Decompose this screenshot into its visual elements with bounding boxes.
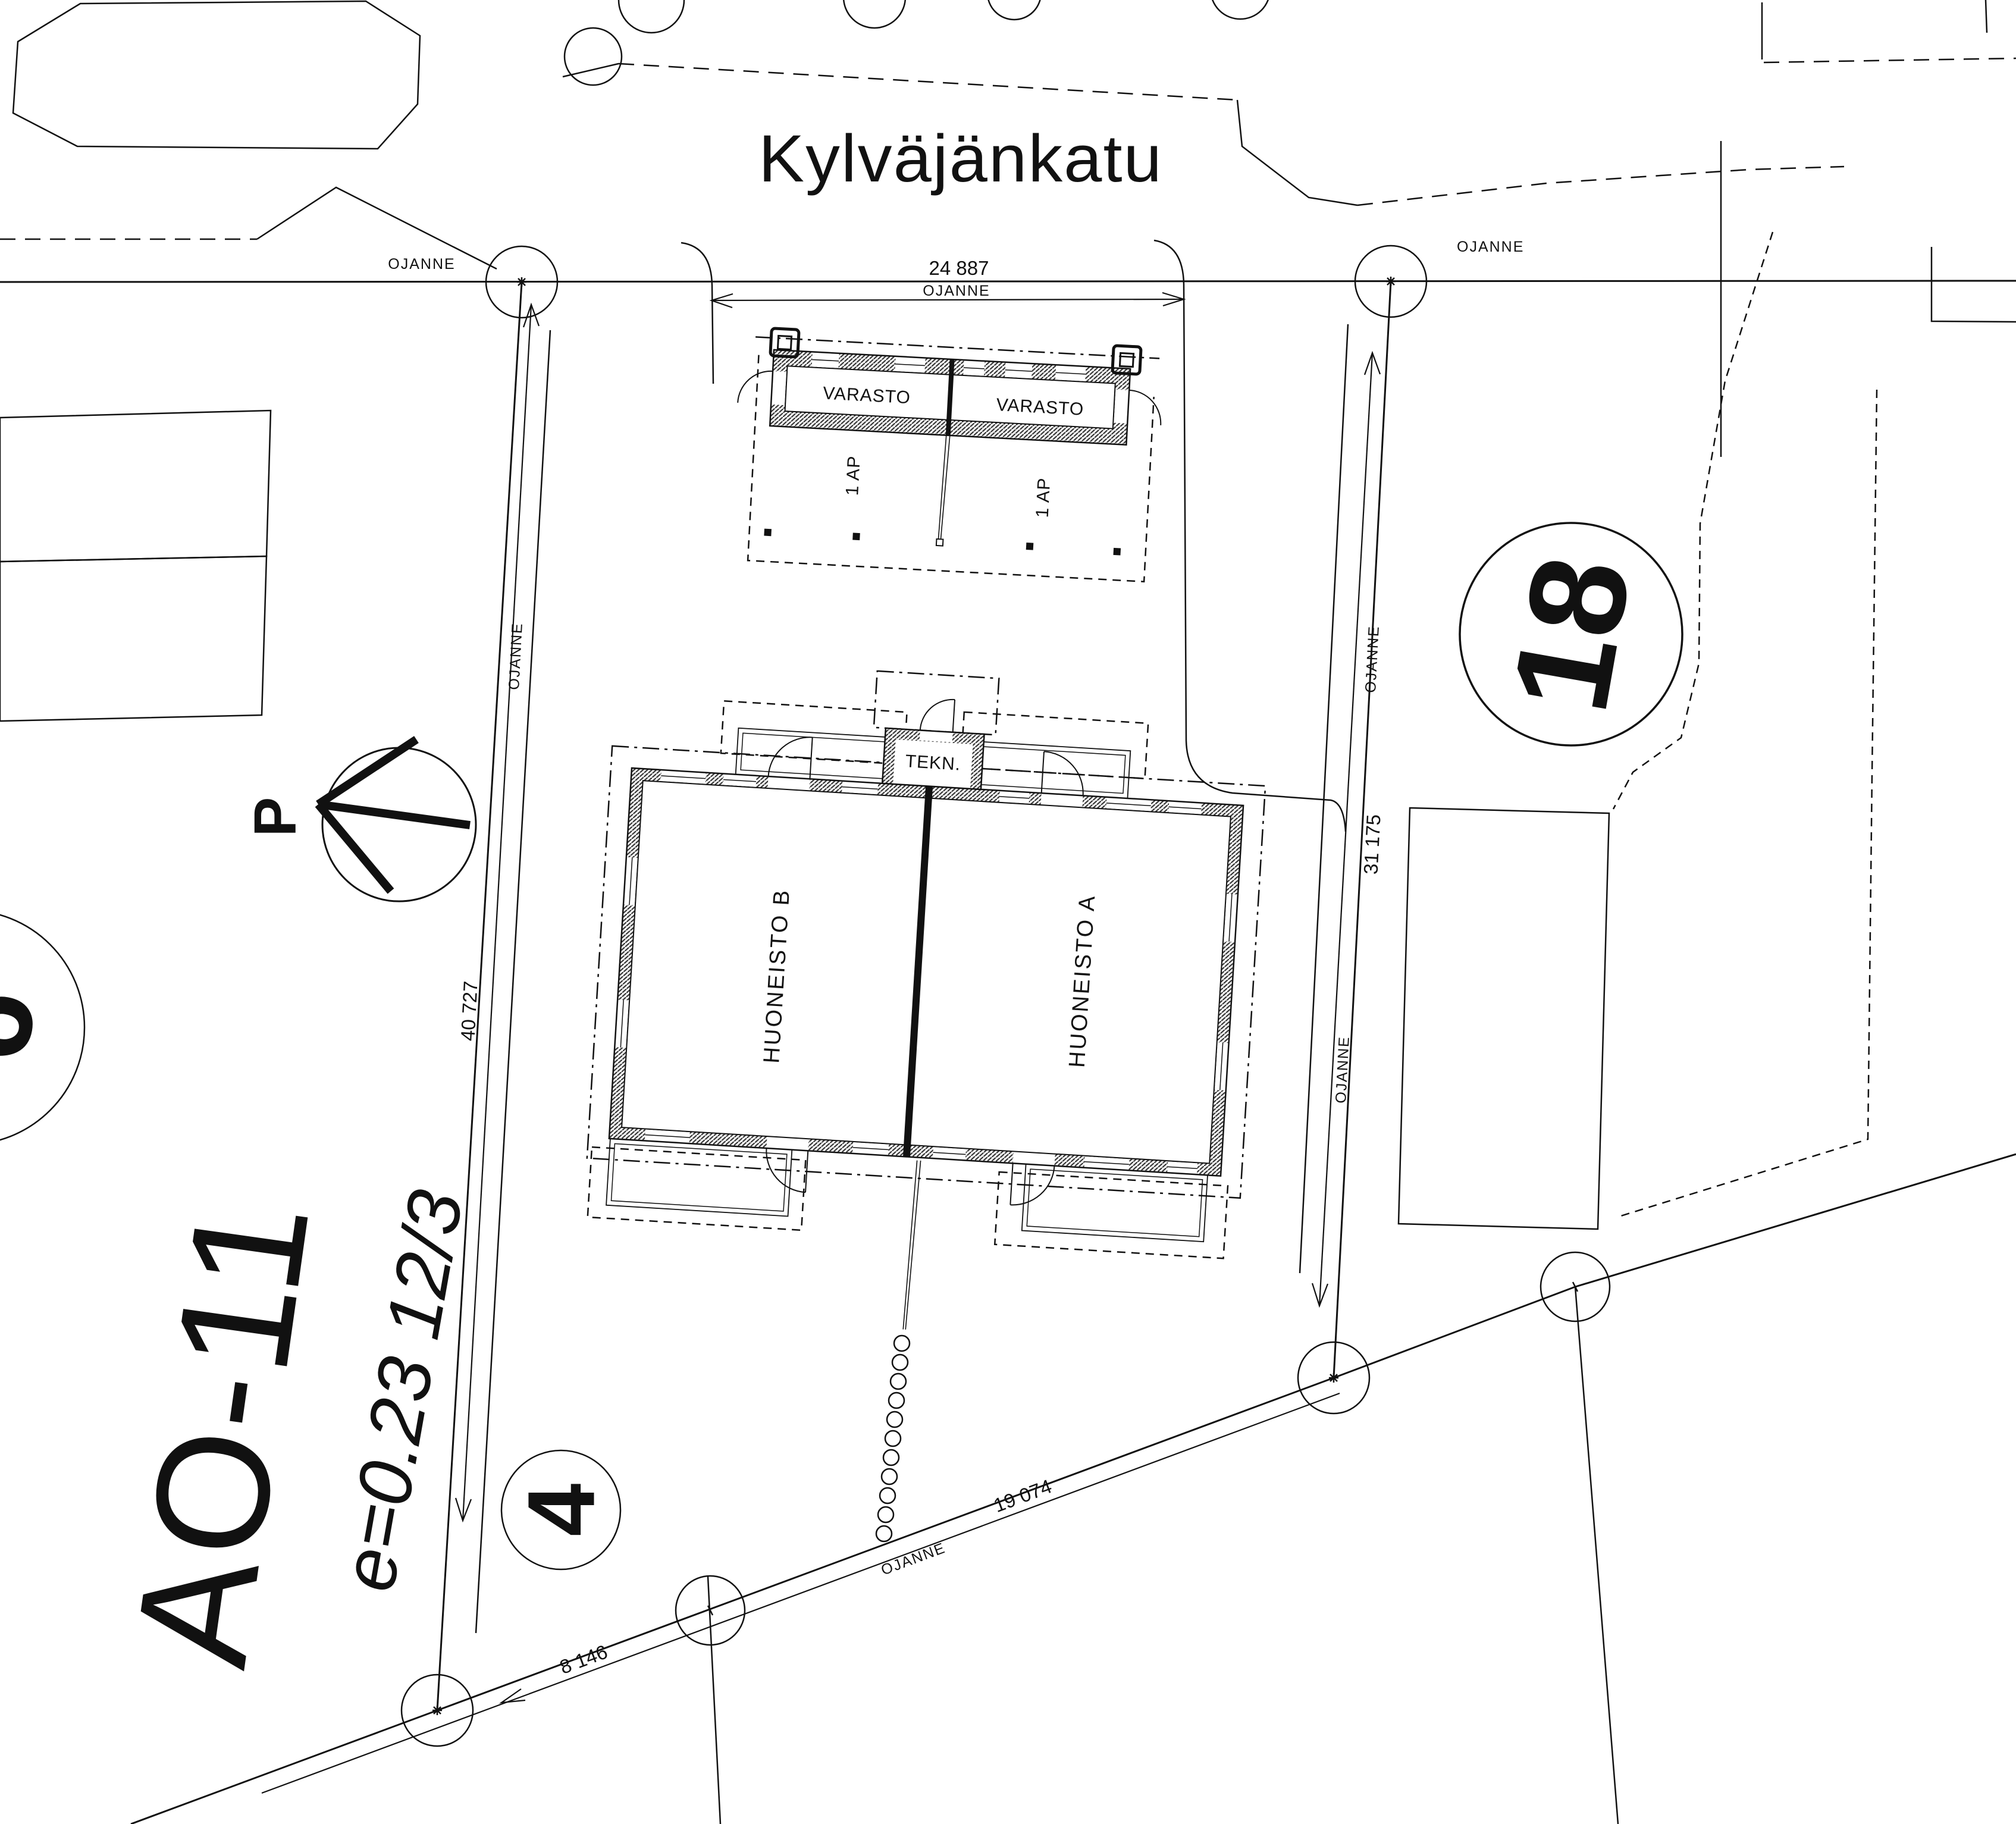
tree-icon (565, 28, 622, 85)
street-far-edge-bend (1237, 100, 1357, 205)
porch-outline (588, 1147, 806, 1230)
dimension-south-short: 8 146 (557, 1640, 610, 1678)
main-building: TEKN. HUONEISTO B HUONEISTO A (578, 655, 1271, 1349)
footpath-stub (903, 1160, 920, 1330)
site-plan-canvas: 18 4 6 P (0, 0, 2016, 1824)
tree-icon (844, 0, 905, 28)
survey-point (1298, 1342, 1369, 1414)
parcel-line-south (708, 1577, 720, 1824)
parking-marker (1026, 543, 1034, 550)
driveway-curb-west (681, 243, 713, 384)
street-and-curbs (0, 187, 2016, 832)
parcel-line-southeast (1575, 1287, 1618, 1824)
neighbor-corner-step (1932, 247, 2016, 322)
parking-space-label-right: 1 AP (1033, 477, 1055, 518)
ditch-label: OJANNE (923, 283, 990, 299)
parking-divider (938, 435, 949, 539)
parking-marker (764, 529, 772, 537)
street-far-edge (563, 64, 619, 77)
neighbor-building-east (1399, 808, 1609, 1229)
door-swing-icon (1127, 390, 1162, 425)
storage-door-opening (772, 371, 786, 405)
parcel-line-dashed-far-east (1617, 390, 1877, 1217)
plot-number-6: 6 (0, 910, 84, 1145)
technical-room: TEKN. (882, 695, 986, 789)
site-plan-drawing: 18 4 6 P (0, 0, 2016, 1824)
storage-and-parking: VARASTO VARASTO 1 AP 1 AP (729, 336, 1164, 582)
tree-icon (1211, 0, 1270, 19)
ditch-label: OJANNE (1332, 1036, 1353, 1104)
survey-point (1541, 1252, 1610, 1321)
door-swing-icon (738, 369, 773, 405)
neighbor-building-west-2 (0, 556, 266, 721)
neighbor-building-outline (13, 1, 420, 149)
tree-icon (619, 0, 684, 33)
parking-marker (1113, 548, 1121, 556)
neighbor-parcel-line (1986, 0, 1987, 33)
survey-point (402, 1675, 473, 1746)
dimension-line-west (463, 305, 531, 1521)
street-boundary-line (0, 281, 2016, 282)
neighbor-building-west-1 (0, 410, 271, 562)
block-number-18: 18 (1460, 523, 1682, 745)
ditch-label: OJANNE (388, 256, 455, 272)
plot-number-4: 4 (501, 1450, 620, 1569)
neighbor-parcel-line-dashed (1764, 58, 2016, 62)
dimension-line-north (711, 299, 1184, 300)
parking-divider-post (936, 539, 943, 546)
street-name: Kylväjänkatu (758, 121, 1163, 196)
dimension-east: 31 175 (1359, 814, 1384, 875)
ditch-label: OJANNE (506, 622, 526, 691)
street-near-edge (257, 187, 497, 269)
door-swing-icon (920, 698, 955, 732)
street-far-edge-dashed (1357, 167, 1844, 205)
parking-marker (852, 533, 860, 541)
storage-building: VARASTO VARASTO (736, 348, 1164, 447)
technical-room-label: TEKN. (905, 751, 961, 775)
tree-icon (987, 0, 1041, 20)
ditch-label: OJANNE (1457, 239, 1524, 255)
adjacent-plot-number-label: 6 (0, 978, 63, 1071)
zoning-code-label: AO-11 (101, 1186, 343, 1677)
street-far-edge-dashed (619, 64, 1237, 100)
ditch-label: OJANNE (1362, 625, 1382, 694)
tekn-roof-outline (874, 671, 999, 735)
parking-space-label-left: 1 AP (842, 455, 864, 496)
ditch-line-west (476, 330, 550, 1633)
footpath-stepping-stones (876, 1336, 910, 1541)
dimension-west: 40 727 (456, 980, 481, 1042)
north-arrow: P (242, 739, 476, 901)
dimension-street-front: 24 887 (929, 257, 989, 279)
north-letter: P (242, 797, 309, 837)
ditch-label: OJANNE (879, 1540, 948, 1579)
storage-door-opening (1114, 390, 1128, 424)
driveway-curb-east (1154, 240, 1346, 832)
plot-number-label: 4 (508, 1483, 614, 1536)
arrow-left-icon (501, 1689, 525, 1703)
block-number-label: 18 (1482, 546, 1660, 723)
